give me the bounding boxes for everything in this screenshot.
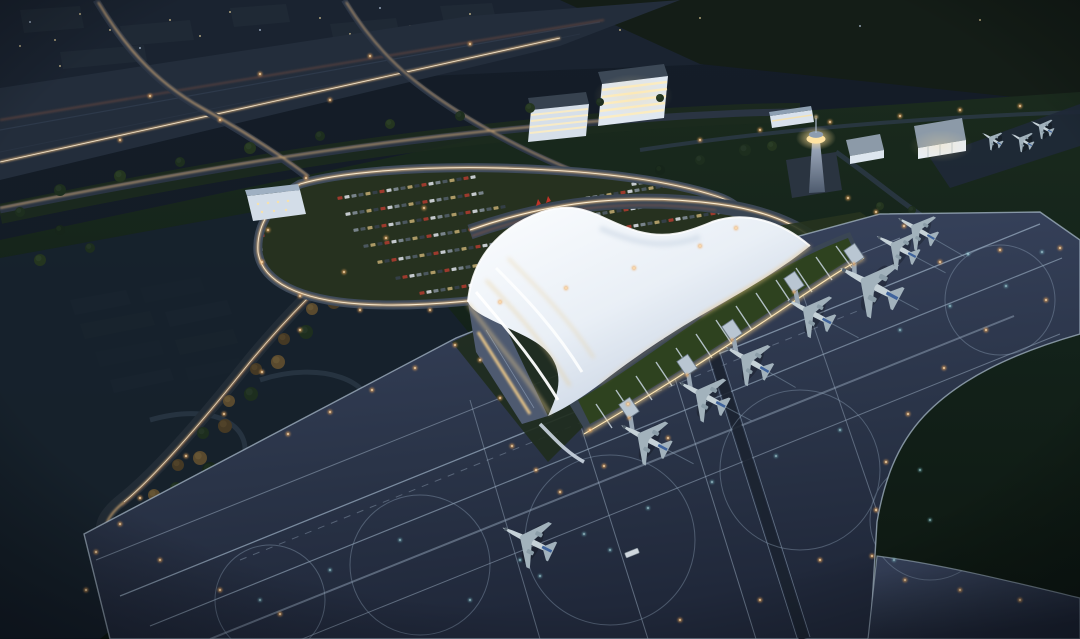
scene-canvas bbox=[0, 0, 1080, 639]
vignette-overlay bbox=[0, 0, 1080, 639]
airport-night-rendering bbox=[0, 0, 1080, 639]
